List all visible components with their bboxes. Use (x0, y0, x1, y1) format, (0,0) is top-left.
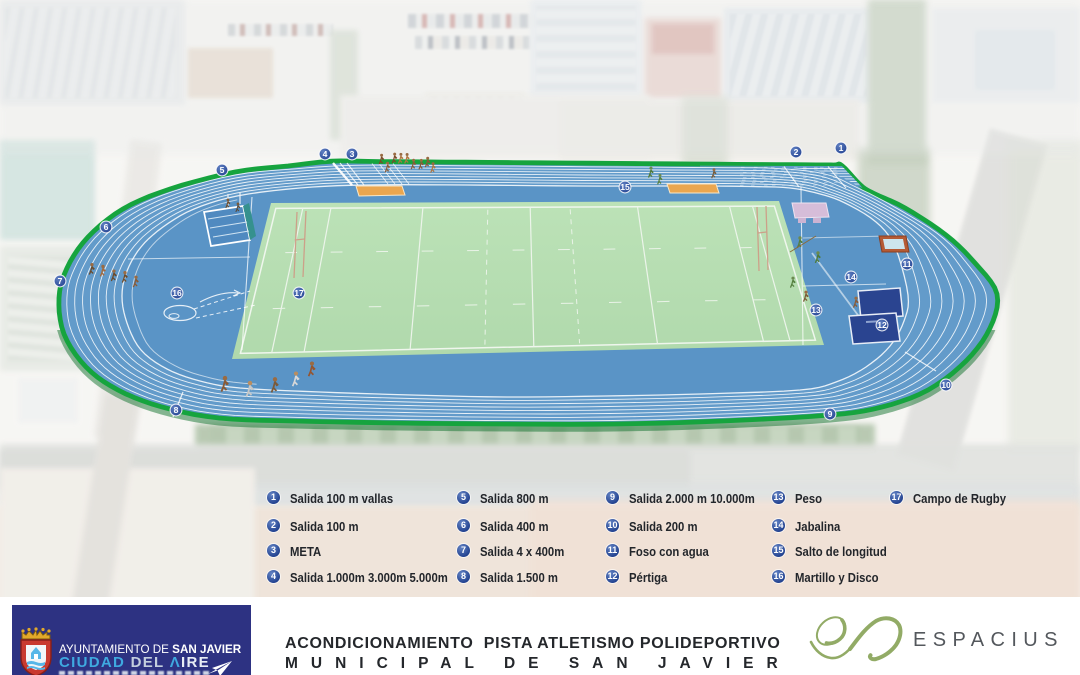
svg-text:1: 1 (839, 143, 844, 153)
svg-text:4: 4 (323, 149, 328, 159)
svg-text:6: 6 (104, 222, 109, 232)
svg-text:9: 9 (828, 409, 833, 419)
svg-text:8: 8 (174, 405, 179, 415)
svg-text:10: 10 (941, 380, 951, 390)
svg-text:17: 17 (294, 288, 304, 298)
svg-text:5: 5 (220, 165, 225, 175)
svg-text:14: 14 (846, 272, 856, 282)
svg-text:12: 12 (877, 320, 887, 330)
svg-text:13: 13 (811, 305, 821, 315)
svg-text:15: 15 (620, 182, 630, 192)
svg-text:2: 2 (794, 147, 799, 157)
svg-text:7: 7 (58, 276, 63, 286)
svg-text:11: 11 (902, 259, 911, 269)
svg-text:16: 16 (172, 288, 182, 298)
svg-text:3: 3 (350, 149, 355, 159)
